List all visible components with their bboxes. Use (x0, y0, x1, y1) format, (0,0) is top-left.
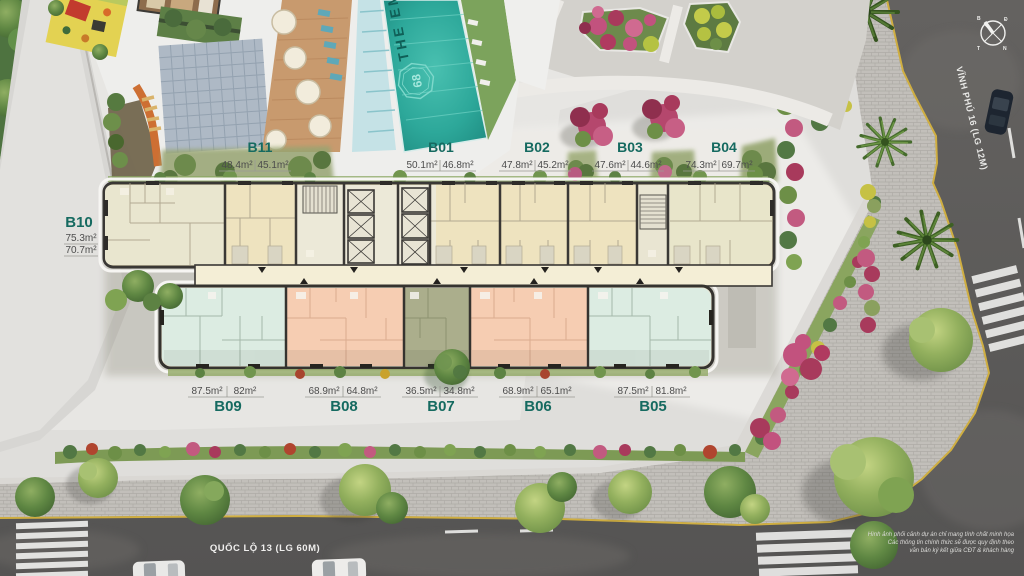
svg-text:68: 68 (409, 73, 425, 89)
svg-text:Đ: Đ (1004, 17, 1008, 23)
svg-text:82m²: 82m² (234, 386, 257, 397)
svg-text:47.8m²: 47.8m² (501, 160, 533, 171)
svg-text:B07: B07 (427, 398, 455, 415)
svg-text:48.4m²: 48.4m² (221, 160, 253, 171)
svg-text:B09: B09 (214, 398, 242, 415)
svg-text:B03: B03 (617, 139, 643, 155)
svg-text:87.5m²: 87.5m² (191, 386, 223, 397)
svg-text:74.3m²: 74.3m² (685, 160, 717, 171)
svg-text:68.9m²: 68.9m² (502, 386, 534, 397)
svg-text:B11: B11 (248, 139, 273, 155)
svg-text:B06: B06 (524, 398, 552, 415)
svg-text:64.8m²: 64.8m² (346, 386, 378, 397)
svg-text:B01: B01 (428, 139, 454, 155)
svg-text:Các thông tin chính thức sẽ đư: Các thông tin chính thức sẽ được quy địn… (888, 540, 1015, 546)
svg-text:36.5m²: 36.5m² (405, 386, 437, 397)
svg-text:QUỐC LỘ 13 (LG 60M): QUỐC LỘ 13 (LG 60M) (210, 542, 320, 554)
svg-text:34.8m²: 34.8m² (443, 386, 475, 397)
svg-text:46.8m²: 46.8m² (442, 160, 474, 171)
svg-text:văn bản ký kết giữa CĐT & khác: văn bản ký kết giữa CĐT & khách hàng (909, 547, 1014, 554)
svg-text:75.3m²: 75.3m² (65, 233, 97, 244)
svg-text:65.1m²: 65.1m² (540, 386, 572, 397)
svg-text:69.7m²: 69.7m² (721, 160, 753, 171)
svg-text:B10: B10 (65, 214, 93, 231)
svg-text:B08: B08 (330, 398, 358, 415)
svg-text:70.7m²: 70.7m² (65, 245, 97, 256)
svg-text:50.1m²: 50.1m² (406, 160, 438, 171)
svg-text:81.8m²: 81.8m² (655, 386, 687, 397)
svg-text:44.6m²: 44.6m² (630, 160, 662, 171)
svg-text:45.2m²: 45.2m² (537, 160, 569, 171)
svg-text:N: N (1003, 46, 1007, 52)
svg-text:47.6m²: 47.6m² (594, 160, 626, 171)
svg-text:B04: B04 (711, 139, 737, 155)
svg-text:B02: B02 (524, 139, 550, 155)
svg-text:45.1m²: 45.1m² (257, 160, 289, 171)
svg-text:68.9m²: 68.9m² (308, 386, 340, 397)
svg-text:B: B (977, 16, 981, 22)
svg-text:T: T (977, 46, 980, 52)
svg-text:B05: B05 (639, 398, 667, 415)
svg-text:Hình ảnh phối cảnh dự án chỉ m: Hình ảnh phối cảnh dự án chỉ mang tính c… (868, 531, 1015, 538)
svg-text:87.5m²: 87.5m² (617, 386, 649, 397)
